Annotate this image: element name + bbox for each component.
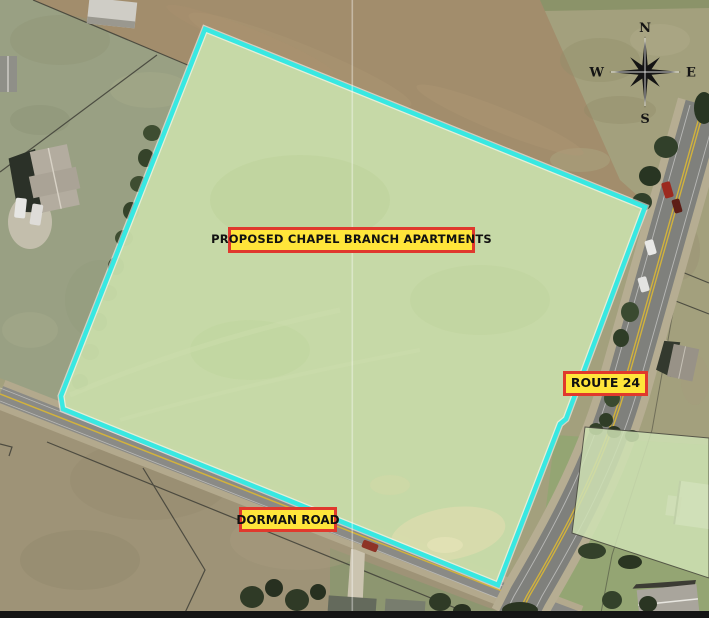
compass-west-label: W bbox=[588, 66, 604, 81]
route-24-label: ROUTE 24 bbox=[563, 371, 648, 396]
dorman-road-label: DORMAN ROAD bbox=[239, 507, 337, 532]
aerial-site-map: N S E W PROPOSED CHAPEL BRANCH APARTMENT… bbox=[0, 0, 709, 618]
building-left-edge bbox=[0, 56, 17, 92]
compass-east-label: E bbox=[686, 66, 696, 81]
car-white-driveway-1 bbox=[14, 198, 27, 219]
site-label: PROPOSED CHAPEL BRANCH APARTMENTS bbox=[228, 227, 475, 253]
barn-top-left bbox=[87, 0, 137, 28]
compass-north-label: N bbox=[639, 21, 651, 36]
aerial-imagery: N S E W bbox=[0, 0, 709, 618]
compass-south-label: S bbox=[640, 112, 649, 127]
imagery-seam-line bbox=[352, 0, 354, 612]
map-bottom-border bbox=[0, 611, 709, 618]
